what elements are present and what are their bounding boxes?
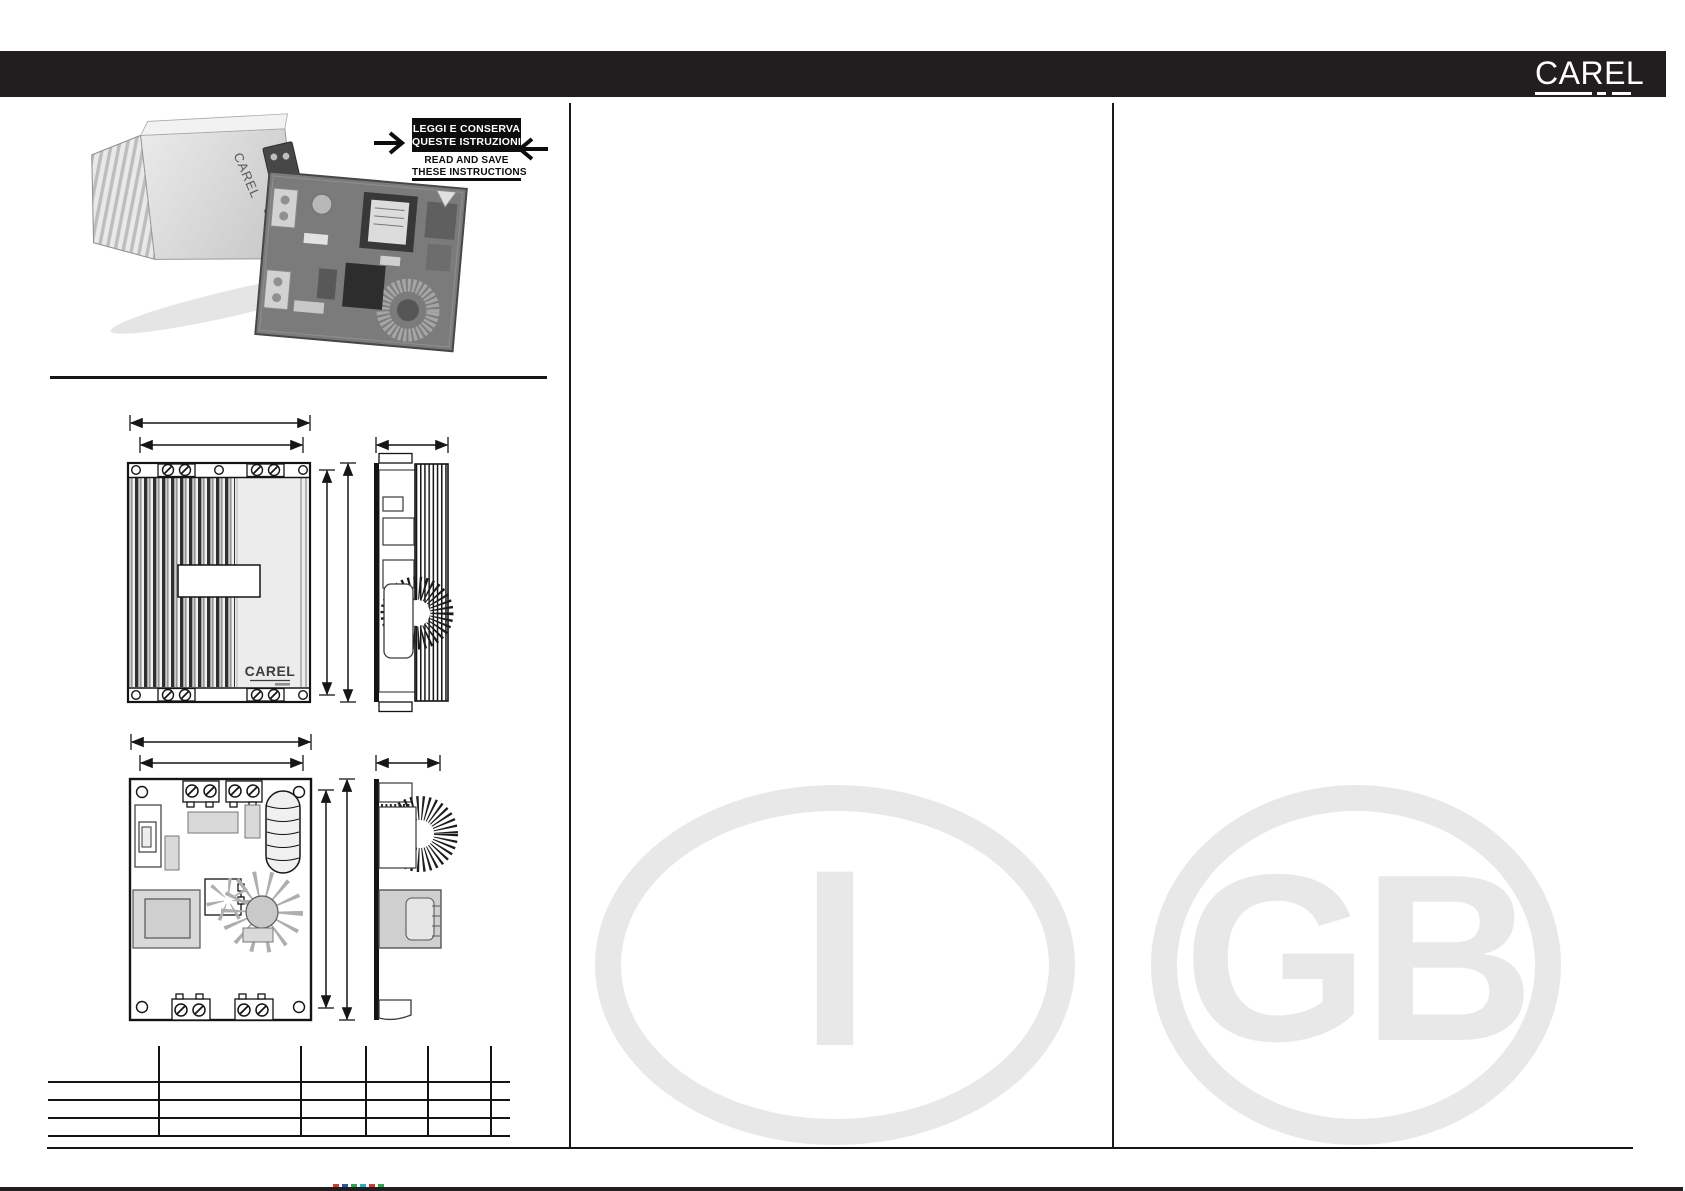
drawing-side-view-board <box>374 755 446 1020</box>
drawing-top-view-board <box>130 734 355 1020</box>
carel-logo-text: CAREL <box>1535 57 1633 89</box>
instruction-notice-box: LEGGI E CONSERVA QUESTE ISTRUZIONI <box>412 118 521 152</box>
footer-rule <box>47 1147 1633 1149</box>
arrow-right-icon <box>374 133 402 153</box>
heatsink-part <box>342 263 386 310</box>
arrow-left-icon <box>520 139 548 159</box>
side-fins <box>415 464 448 701</box>
column-divider-2 <box>1112 103 1114 1147</box>
terminal-block <box>226 781 262 802</box>
spec-table <box>48 1046 510 1136</box>
heatsink-spikes <box>236 886 288 938</box>
photo-carel-label: CAREL <box>231 150 264 200</box>
watermark-english: GB <box>1151 785 1561 1145</box>
carel-logo: CAREL <box>1535 57 1633 95</box>
warning-triangle-icon <box>435 190 456 208</box>
rating-label <box>178 565 260 597</box>
notice-underline <box>412 178 521 181</box>
product-photo-heatsink: CAREL <box>67 83 363 344</box>
toroid-side-icon <box>392 588 442 638</box>
watermark-italian: I <box>595 785 1075 1145</box>
carel-logo-underline <box>1535 92 1633 95</box>
drawing-front-view-heatsink: CAREL <box>128 415 356 702</box>
print-registration-marks <box>333 1184 384 1187</box>
toroid-side-icon <box>394 808 446 860</box>
notice-english-line1: READ AND SAVE <box>412 155 521 167</box>
terminal-block <box>172 999 210 1020</box>
registration-mark <box>378 1184 384 1187</box>
notice-italian-line2: QUESTE ISTRUZIONI <box>412 136 521 149</box>
component-block <box>379 890 441 948</box>
watermark-english-label: GB <box>1184 840 1529 1078</box>
toroidal-coil <box>381 283 435 337</box>
registration-mark <box>360 1184 366 1187</box>
notice-italian-line1: LEGGI E CONSERVA <box>412 123 521 136</box>
drawing-carel-label: CAREL <box>245 663 296 679</box>
notice-english-line2: THESE INSTRUCTIONS <box>412 167 521 179</box>
product-photo-board <box>255 172 466 352</box>
registration-mark <box>333 1184 339 1187</box>
footer-bar <box>0 1187 1683 1191</box>
heatsink-fins <box>72 135 168 272</box>
registration-mark <box>369 1184 375 1187</box>
terminal-block <box>271 188 298 228</box>
transformer-top-view <box>133 890 200 948</box>
watermark-italian-label: I <box>800 833 870 1085</box>
terminal-block <box>264 203 300 239</box>
terminal-block <box>235 999 273 1020</box>
document-page: CAREL I GB LEGGI E CONSERVA QUESTE ISTRU… <box>0 0 1685 1191</box>
terminal-block <box>264 270 291 310</box>
photo-section-rule <box>50 376 547 379</box>
capacitor <box>311 193 333 215</box>
heatsink-body <box>127 103 314 290</box>
terminal-block <box>263 142 300 182</box>
drawing-side-view-heatsink <box>374 437 448 712</box>
instruction-notice-english: READ AND SAVE THESE INSTRUCTIONS <box>412 155 521 178</box>
header-bar: CAREL <box>0 51 1666 97</box>
terminal-block <box>183 781 219 802</box>
transformer <box>359 192 418 252</box>
registration-mark <box>351 1184 357 1187</box>
coil-top-view <box>266 791 300 873</box>
column-divider-1 <box>569 103 571 1147</box>
pcb-board <box>255 172 466 352</box>
registration-mark <box>342 1184 348 1187</box>
